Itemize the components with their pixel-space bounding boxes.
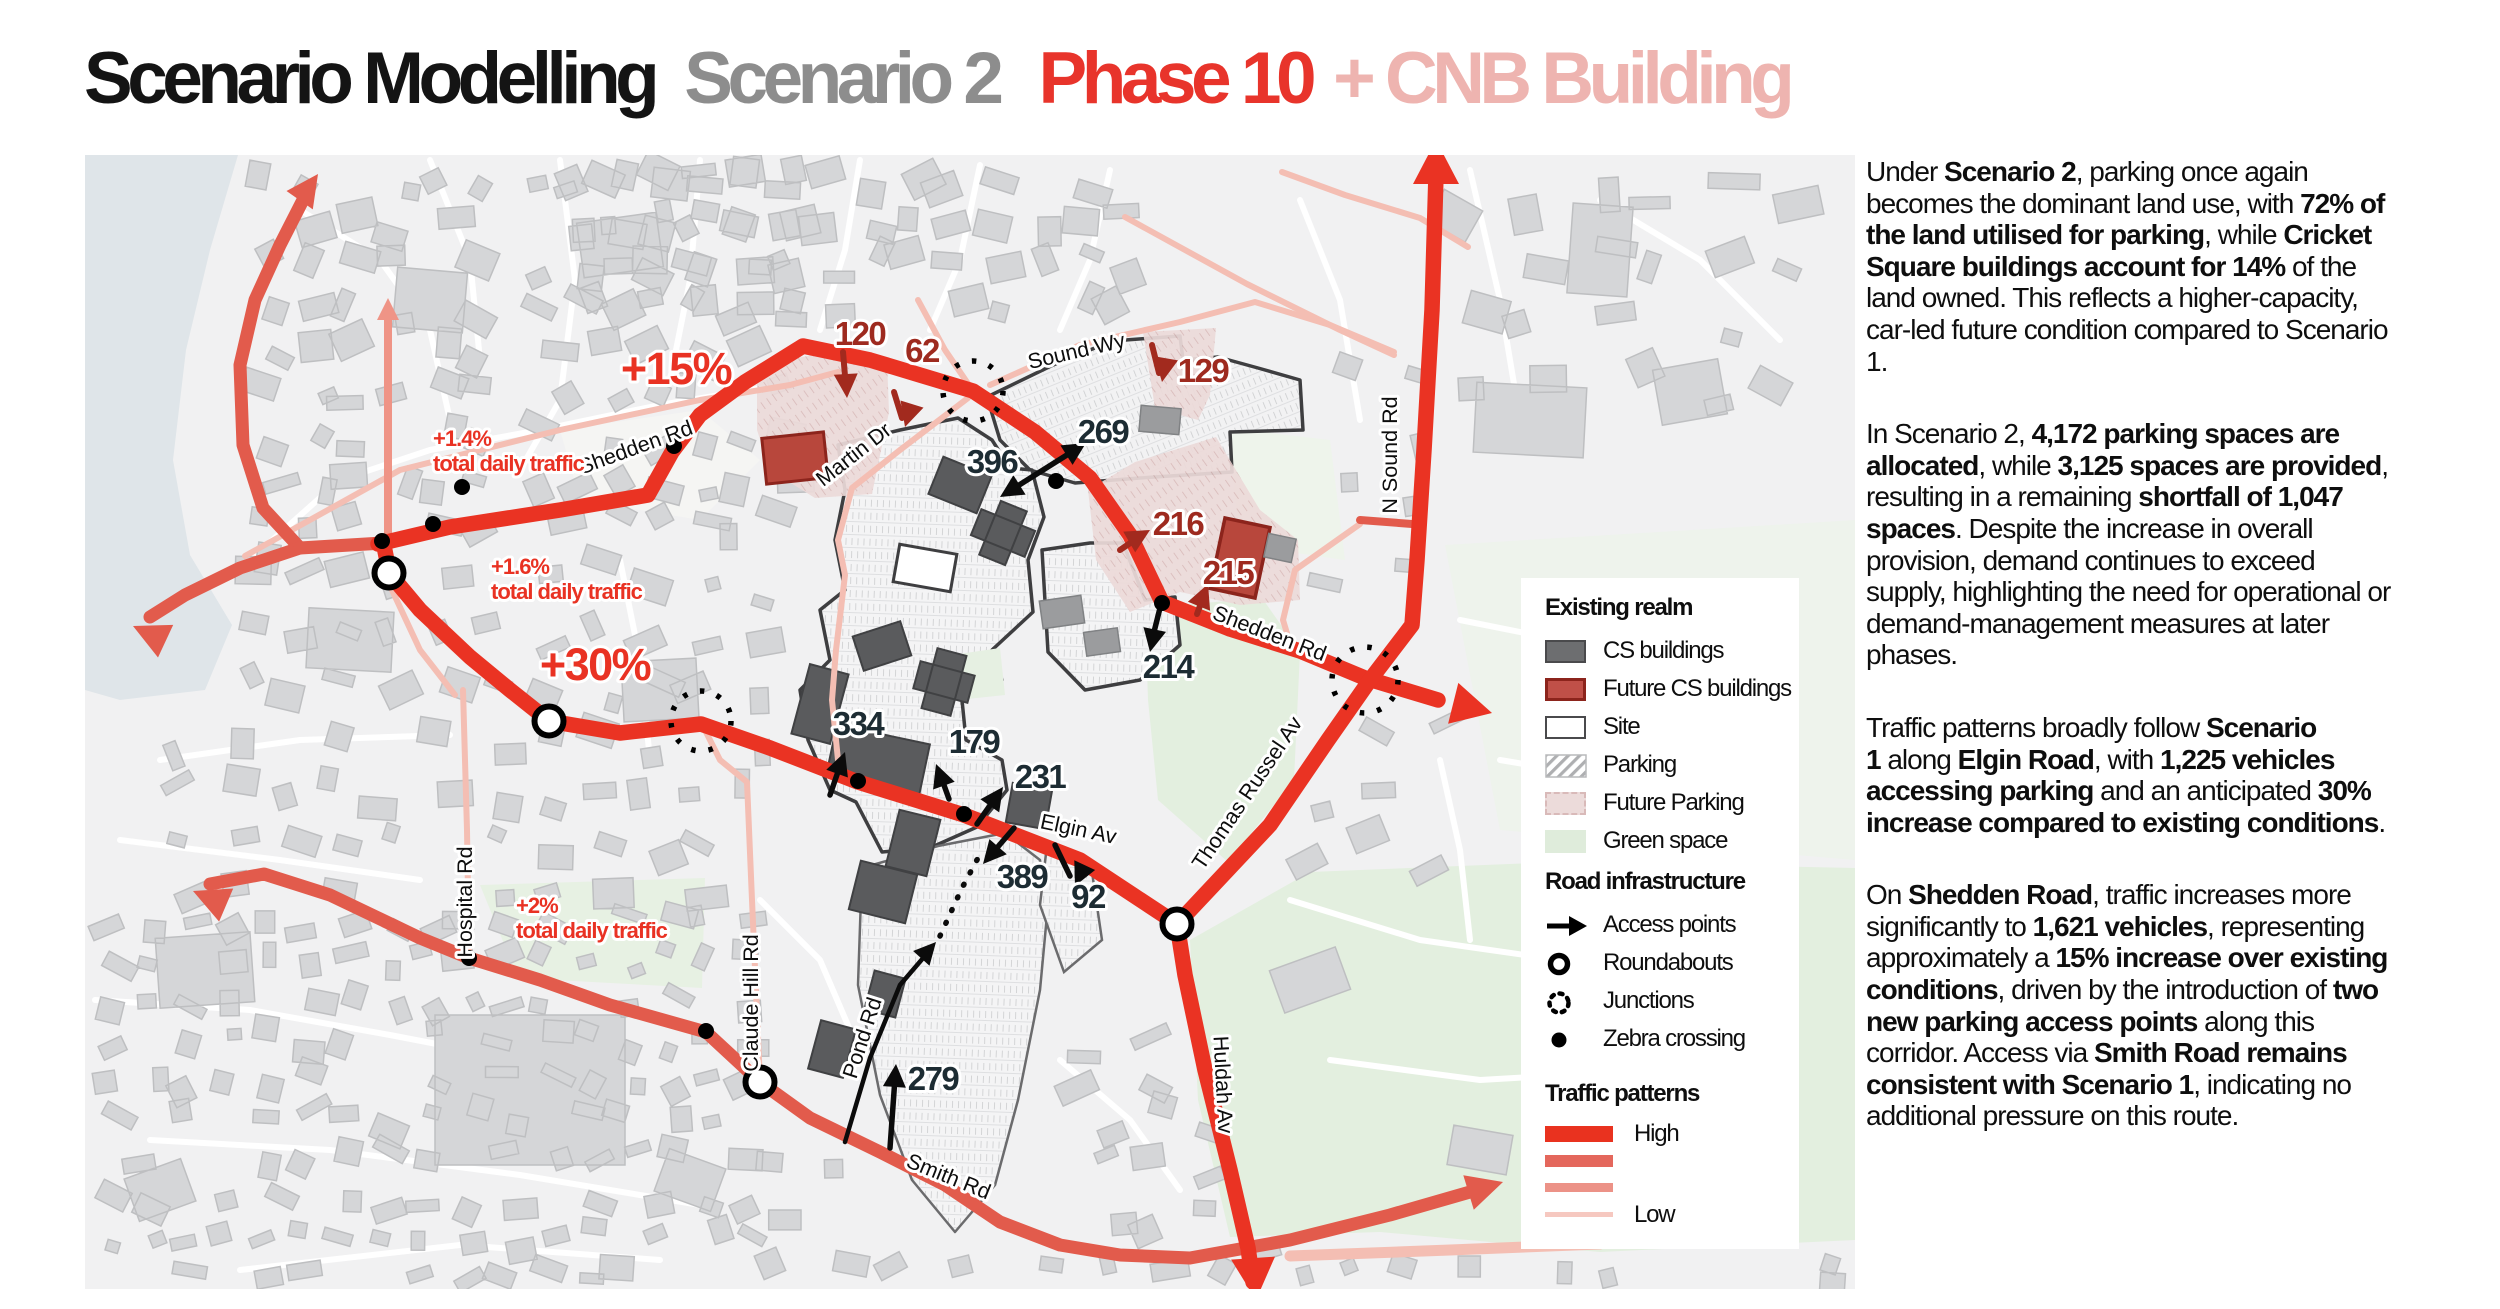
svg-text:N Sound Rd: N Sound Rd bbox=[1378, 396, 1402, 513]
svg-text:+15%: +15% bbox=[621, 343, 732, 394]
svg-text:+1.4%: +1.4% bbox=[433, 426, 491, 451]
svg-text:129: 129 bbox=[1178, 352, 1230, 389]
svg-text:Hospital Rd: Hospital Rd bbox=[453, 846, 477, 957]
svg-text:+2%: +2% bbox=[516, 893, 558, 918]
svg-text:389: 389 bbox=[997, 858, 1049, 895]
svg-text:62: 62 bbox=[905, 332, 940, 369]
svg-text:+1.6%: +1.6% bbox=[491, 554, 549, 579]
svg-text:231: 231 bbox=[1015, 758, 1067, 795]
svg-text:total daily traffic: total daily traffic bbox=[491, 579, 643, 604]
svg-text:92: 92 bbox=[1071, 878, 1106, 915]
svg-text:269: 269 bbox=[1078, 413, 1130, 450]
svg-text:179: 179 bbox=[949, 723, 1001, 760]
svg-text:total daily traffic: total daily traffic bbox=[433, 451, 585, 476]
svg-text:+30%: +30% bbox=[540, 639, 651, 690]
svg-text:total daily traffic: total daily traffic bbox=[516, 918, 668, 943]
svg-text:Claude Hill Rd: Claude Hill Rd bbox=[739, 934, 763, 1071]
svg-text:279: 279 bbox=[908, 1060, 960, 1097]
svg-text:214: 214 bbox=[1143, 648, 1196, 685]
svg-text:216: 216 bbox=[1153, 505, 1205, 542]
svg-text:120: 120 bbox=[835, 315, 886, 352]
svg-text:Huldah Av: Huldah Av bbox=[1208, 1035, 1237, 1134]
svg-text:396: 396 bbox=[967, 443, 1019, 480]
svg-text:334: 334 bbox=[833, 705, 886, 742]
svg-text:215: 215 bbox=[1203, 554, 1255, 591]
